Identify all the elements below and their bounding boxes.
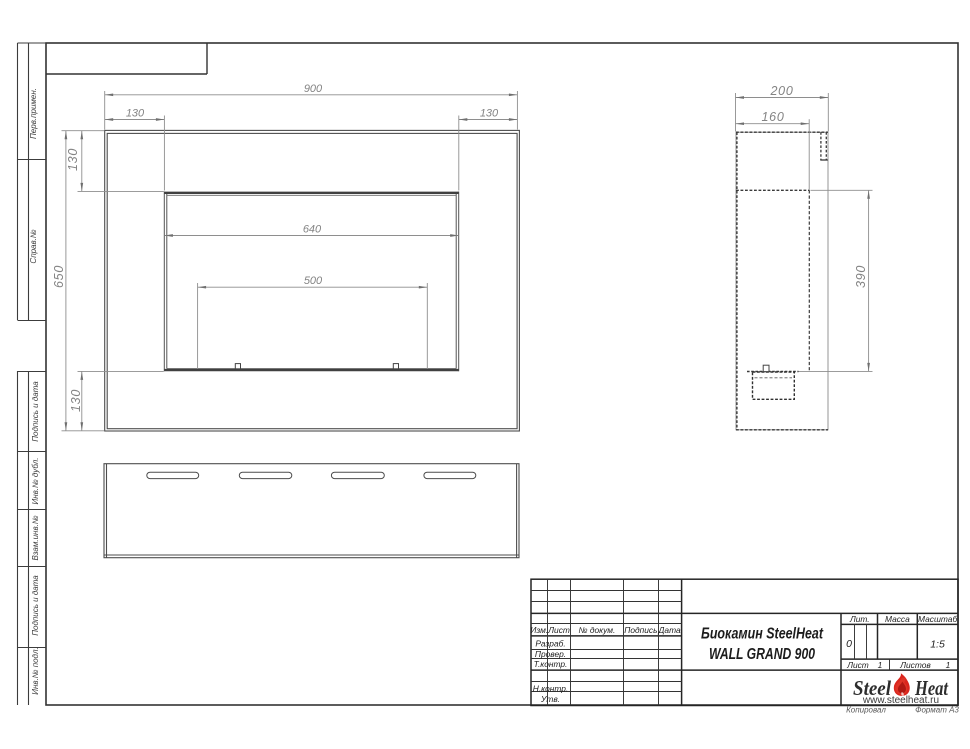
svg-text:Перв.примен.: Перв.примен. — [29, 88, 38, 139]
svg-text:Провер.: Провер. — [535, 649, 566, 659]
svg-text:Масса: Масса — [885, 614, 910, 624]
svg-text:130: 130 — [69, 389, 83, 412]
svg-text:Утв.: Утв. — [540, 694, 560, 704]
svg-text:www.steelheat.ru: www.steelheat.ru — [862, 695, 939, 706]
svg-text:WALL GRAND 900: WALL GRAND 900 — [709, 646, 815, 663]
svg-text:0: 0 — [846, 638, 852, 650]
svg-text:Н.контр.: Н.контр. — [533, 683, 568, 693]
svg-text:160: 160 — [762, 110, 785, 124]
svg-text:Инв.№ подл.: Инв.№ подл. — [31, 647, 40, 694]
svg-text:Формат А3: Формат А3 — [915, 706, 959, 715]
svg-text:Взам.инв.№: Взам.инв.№ — [31, 515, 40, 560]
svg-text:Инв.№ дубл.: Инв.№ дубл. — [31, 458, 40, 505]
svg-text:130: 130 — [480, 108, 499, 120]
svg-text:Изм.: Изм. — [530, 625, 548, 635]
svg-text:130: 130 — [66, 148, 80, 171]
svg-text:Лист: Лист — [547, 625, 570, 635]
svg-text:Дата: Дата — [658, 625, 681, 635]
svg-text:Подпись и дата: Подпись и дата — [31, 381, 40, 442]
svg-text:Лит.: Лит. — [849, 614, 870, 624]
svg-text:№ докум.: № докум. — [578, 625, 615, 635]
svg-text:Копировал: Копировал — [846, 706, 886, 715]
svg-text:Листов: Листов — [899, 660, 931, 670]
svg-text:1: 1 — [946, 660, 951, 670]
svg-text:Биокамин SteelHeat: Биокамин SteelHeat — [701, 626, 824, 643]
svg-text:1:5: 1:5 — [930, 639, 945, 651]
svg-text:Справ.№: Справ.№ — [29, 229, 38, 263]
svg-text:900: 900 — [304, 83, 323, 95]
svg-text:Т.контр.: Т.контр. — [534, 659, 568, 669]
svg-text:Подпись: Подпись — [624, 625, 657, 635]
svg-text:130: 130 — [126, 108, 145, 120]
svg-text:500: 500 — [304, 275, 323, 287]
svg-text:390: 390 — [854, 265, 868, 288]
svg-text:1: 1 — [878, 660, 883, 670]
svg-text:Масштаб: Масштаб — [918, 614, 957, 624]
svg-text:Лист: Лист — [846, 660, 869, 670]
svg-text:Подпись и дата: Подпись и дата — [31, 575, 40, 636]
svg-text:650: 650 — [52, 265, 66, 288]
svg-text:Разраб.: Разраб. — [535, 639, 565, 649]
svg-text:640: 640 — [303, 224, 322, 236]
svg-text:200: 200 — [770, 84, 794, 98]
